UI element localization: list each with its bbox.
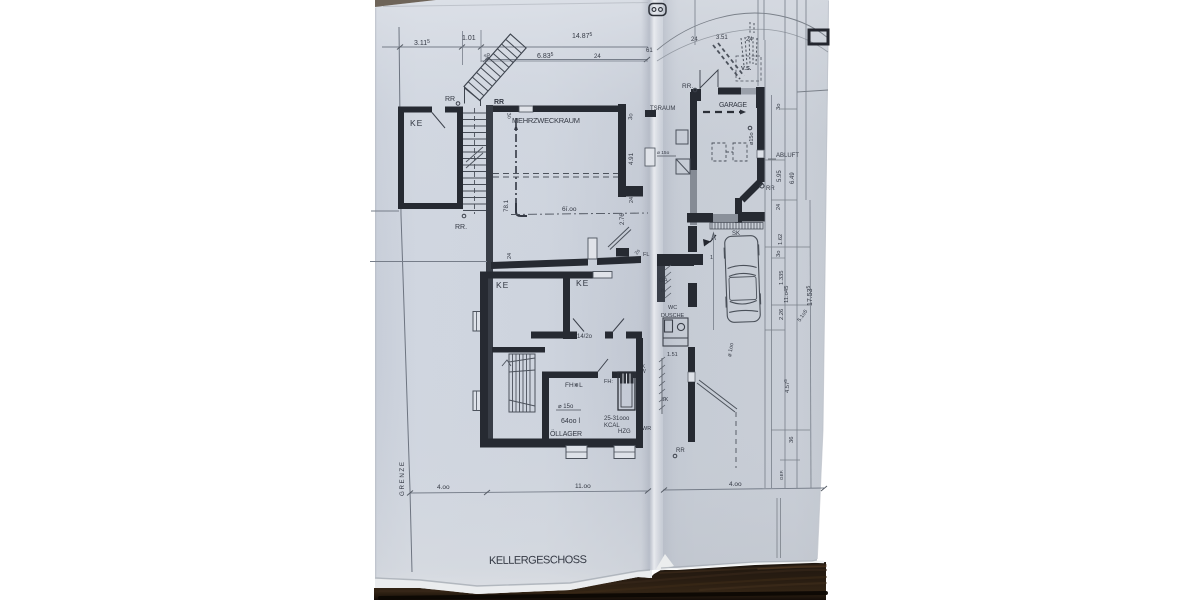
svg-text:1.62: 1.62 <box>778 234 784 245</box>
svg-text:GARAGE: GARAGE <box>719 102 747 109</box>
svg-text:FH⋇L: FH⋇L <box>565 382 583 389</box>
svg-text:GEF.: GEF. <box>779 470 784 480</box>
svg-text:KELLERGESCHOSS: KELLERGESCHOSS <box>489 554 588 567</box>
svg-text:2.76: 2.76 <box>620 213 626 225</box>
svg-text:5.95: 5.95 <box>777 170 783 182</box>
svg-text:MEHRZWECKRAUM: MEHRZWECKRAUM <box>512 116 580 125</box>
svg-text:1.51: 1.51 <box>667 352 678 358</box>
svg-text:24: 24 <box>776 204 782 210</box>
svg-text:36: 36 <box>789 437 795 443</box>
svg-text:24: 24 <box>507 253 513 259</box>
svg-text:24: 24 <box>629 197 635 203</box>
svg-text:ø 15o: ø 15o <box>657 150 670 156</box>
svg-text:RR: RR <box>766 186 775 192</box>
svg-text:4.oo: 4.oo <box>729 481 742 488</box>
svg-text:6ī.oo: 6ī.oo <box>562 206 577 213</box>
svg-text:1.335: 1.335 <box>779 270 785 285</box>
svg-text:3o: 3o <box>628 113 635 120</box>
svg-text:FH:: FH: <box>604 379 613 385</box>
svg-text:GA: GA <box>659 278 668 284</box>
svg-text:64oo l: 64oo l <box>561 418 581 425</box>
svg-text:11.o45: 11.o45 <box>784 286 790 303</box>
svg-text:KE: KE <box>410 118 423 128</box>
svg-text:RR.: RR. <box>682 83 693 90</box>
svg-text:4.oo: 4.oo <box>437 484 450 491</box>
svg-text:⌀ 15o: ⌀ 15o <box>558 404 574 410</box>
svg-text:25-31ooo: 25-31ooo <box>604 416 630 422</box>
svg-text:KE: KE <box>496 280 509 290</box>
svg-text:4.91: 4.91 <box>628 152 635 165</box>
svg-text:RR: RR <box>445 96 455 103</box>
svg-text:61: 61 <box>646 48 653 54</box>
svg-text:HZG: HZG <box>618 429 631 435</box>
svg-text:WR: WR <box>642 426 651 432</box>
svg-text:14.875: 14.875 <box>572 32 593 40</box>
svg-text:6.49: 6.49 <box>790 172 796 184</box>
svg-text:V.S.: V.S. <box>741 66 752 72</box>
svg-text:FL: FL <box>643 252 649 258</box>
svg-text:1: 1 <box>710 255 713 261</box>
svg-text:3.51: 3.51 <box>716 35 728 41</box>
svg-text:RR: RR <box>676 448 685 454</box>
svg-text:24: 24 <box>594 54 601 60</box>
svg-text:3o: 3o <box>776 104 782 110</box>
svg-text:H.: H. <box>661 288 666 294</box>
svg-text:17.535: 17.535 <box>806 285 814 306</box>
svg-text:3o: 3o <box>776 251 782 257</box>
svg-text:RR.: RR. <box>455 224 467 231</box>
svg-text:KE: KE <box>576 278 589 288</box>
svg-text:78.1: 78.1 <box>503 199 510 212</box>
svg-text:ø15o: ø15o <box>749 132 755 145</box>
svg-text:ÖLLAGER: ÖLLAGER <box>550 430 582 438</box>
svg-text:WC: WC <box>668 305 677 311</box>
svg-text:14/2o: 14/2o <box>577 334 593 340</box>
svg-text:ABLUFT: ABLUFT <box>776 153 799 159</box>
svg-text:3o: 3o <box>505 112 512 119</box>
svg-text:RR: RR <box>494 99 504 106</box>
svg-text:2.26: 2.26 <box>779 309 785 320</box>
svg-text:11.oo: 11.oo <box>575 483 591 490</box>
svg-text:1.01: 1.01 <box>462 35 476 42</box>
